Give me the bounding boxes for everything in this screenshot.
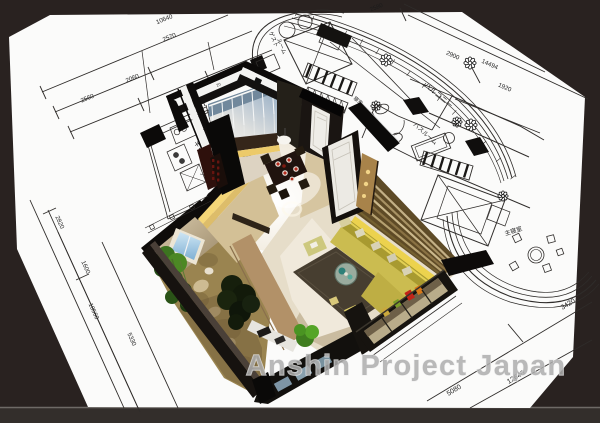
svg-text:Anshin Project Japan: Anshin Project Japan [246,350,567,382]
